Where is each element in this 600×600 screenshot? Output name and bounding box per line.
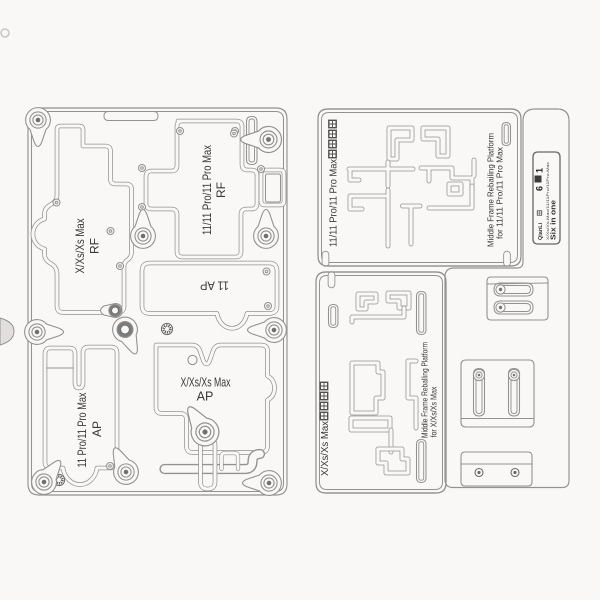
svg-text:RF: RF: [88, 238, 102, 254]
svg-text:RF: RF: [214, 182, 228, 198]
svg-text:X/Xs/Xs Max: X/Xs/Xs Max: [181, 376, 232, 390]
svg-text:Middle Frame Rebailing Platfor: Middle Frame Rebailing Platform: [487, 133, 496, 247]
svg-text:Six in one: Six in one: [551, 200, 558, 240]
svg-text:AP: AP: [90, 421, 104, 437]
svg-text:11/11 Pro/11 Pro Max: 11/11 Pro/11 Pro Max: [200, 145, 214, 235]
svg-text:11/11 Pro/11 Pro Max: 11/11 Pro/11 Pro Max: [328, 158, 340, 247]
svg-text:AP: AP: [197, 390, 214, 404]
svg-text:X/Xs/Xs Max: X/Xs/Xs Max: [73, 219, 87, 274]
svg-text:for X/Xs/Xs Max: for X/Xs/Xs Max: [430, 387, 439, 438]
svg-text:1: 1: [535, 168, 545, 173]
svg-text:for 11/11 Pro/11 Pro Max: for 11/11 Pro/11 Pro Max: [496, 147, 505, 239]
svg-text:X/Xs/Xs-Max/11/11Pro/11Pro-Max: X/Xs/Xs-Max/11/11Pro/11Pro-Max: [546, 162, 550, 240]
svg-text:X/Xs/Xs Max: X/Xs/Xs Max: [319, 420, 331, 476]
svg-text:Middle Frame Reballing Platfor: Middle Frame Reballing Platform: [421, 342, 430, 438]
svg-text:QianLi: QianLi: [538, 222, 544, 240]
svg-text:6: 6: [535, 186, 545, 191]
svg-text:11 Pro/11 Pro Max: 11 Pro/11 Pro Max: [75, 393, 89, 468]
svg-text:11 AP: 11 AP: [200, 279, 229, 293]
